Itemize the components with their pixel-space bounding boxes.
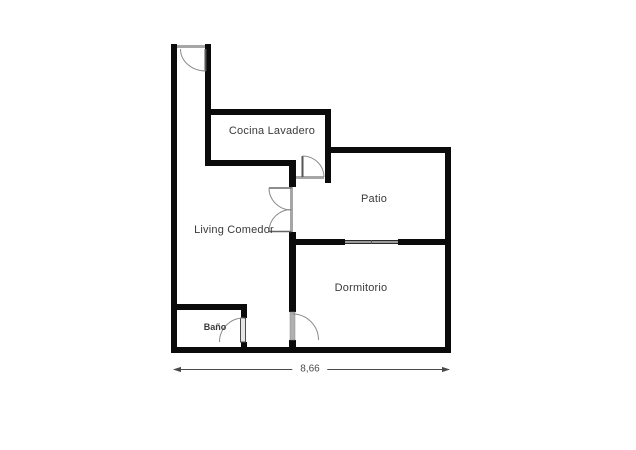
wall-right xyxy=(445,147,451,353)
room-label-living: Living Comedor xyxy=(194,224,274,236)
dormitorio-door-leaf xyxy=(290,312,295,340)
doors-and-dimension-layer xyxy=(0,0,636,450)
wall-bano-right-lower xyxy=(241,342,247,347)
room-label-patio: Patio xyxy=(361,193,387,205)
wall-patio-top xyxy=(325,147,451,153)
wall-bano-top xyxy=(171,304,247,310)
entry-door-threshold xyxy=(177,45,205,48)
wall-corridor-right xyxy=(205,44,211,166)
wall-cocina-bottom xyxy=(205,160,289,166)
entry-door-arc xyxy=(181,49,206,71)
wall-patio-dormitorio-left xyxy=(296,239,345,245)
wall-cocina-top xyxy=(205,109,331,115)
dimension-arrow-right xyxy=(442,367,450,372)
wall-living-dormitorio-upper xyxy=(289,232,296,312)
dimension-arrow-left xyxy=(173,367,181,372)
wall-bottom xyxy=(171,347,451,353)
floor-plan: Cocina Lavadero Patio Living Comedor Dor… xyxy=(0,0,636,450)
french-door-top-arc xyxy=(269,188,292,210)
wall-patio-dormitorio-right xyxy=(398,239,445,245)
dormitorio-door-arc xyxy=(293,314,319,340)
room-label-dormitorio: Dormitorio xyxy=(335,282,388,294)
dimension-label: 8,66 xyxy=(292,364,327,375)
window-mullion xyxy=(371,240,372,244)
room-label-cocina: Cocina Lavadero xyxy=(229,125,315,137)
cocina-door-arc xyxy=(303,156,325,177)
room-label-bano: Baño xyxy=(204,322,227,332)
wall-cocina-right xyxy=(325,109,331,183)
wall-bano-right-upper xyxy=(241,304,247,318)
cocina-door-threshold xyxy=(296,176,324,179)
wall-living-dormitorio-lower xyxy=(289,340,296,353)
bano-door-leaf xyxy=(241,318,246,342)
wall-living-jog xyxy=(289,160,296,187)
